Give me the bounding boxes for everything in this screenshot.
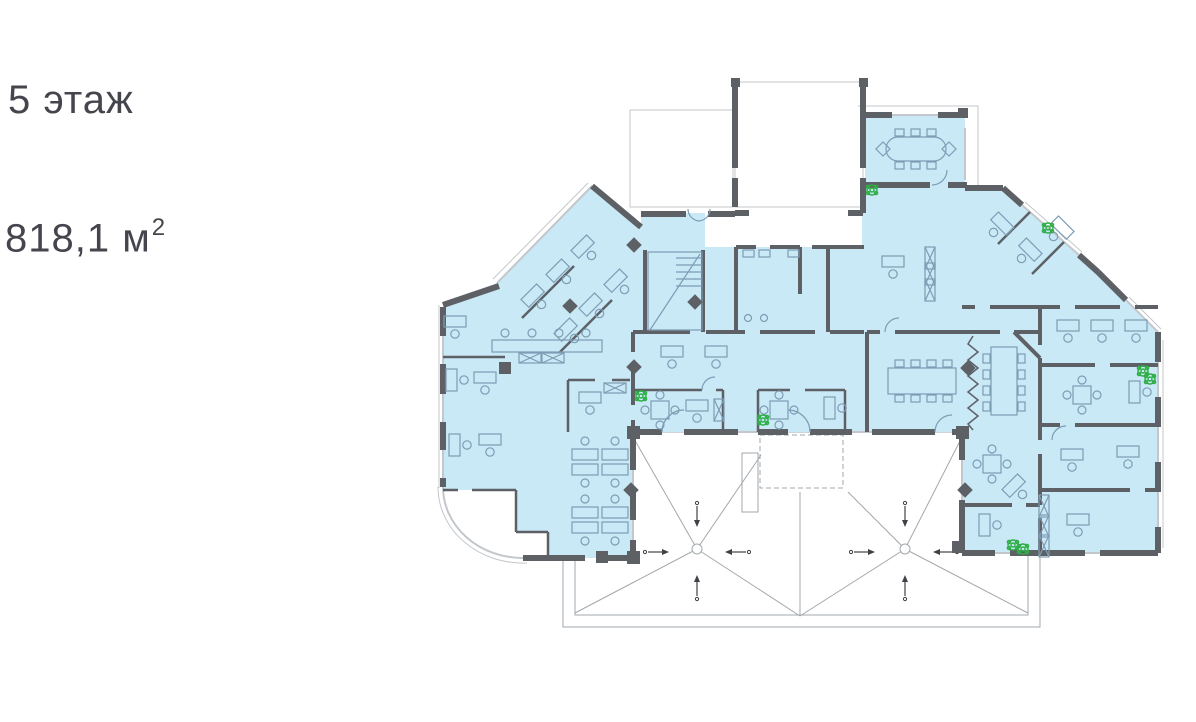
- roof-slope-arrows: [643, 501, 958, 600]
- page: 5 этаж 818,1 м2: [0, 0, 1196, 722]
- floor-plan: [0, 0, 1196, 722]
